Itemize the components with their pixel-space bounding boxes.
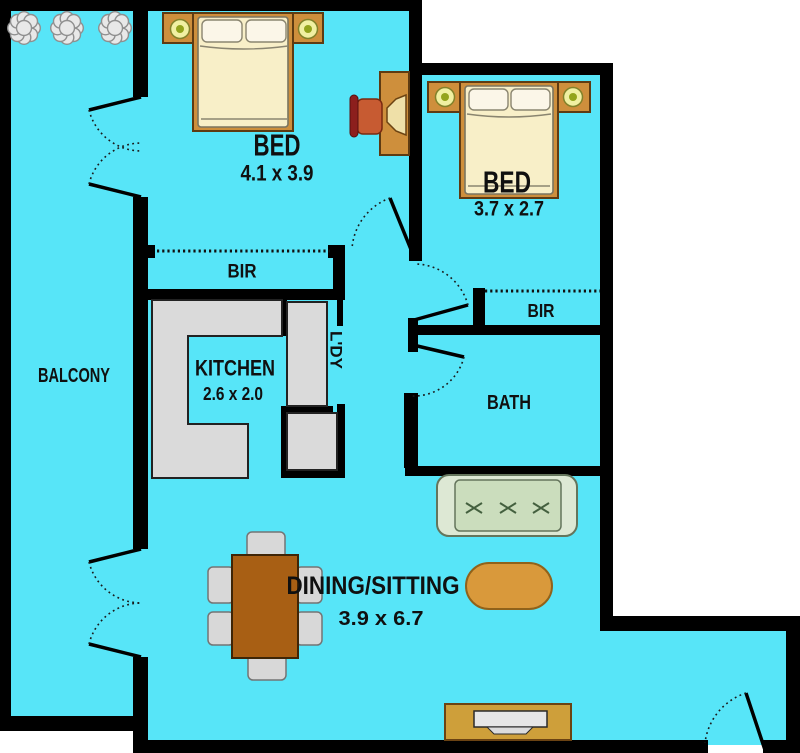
wall-bed2-bath bbox=[411, 325, 613, 335]
wall-balcony-bottom bbox=[0, 716, 148, 731]
pillow-icon bbox=[469, 89, 508, 110]
floorplan-canvas: BALCONY BED 4.1 x 3.9 BED 3.7 x 2.7 BIR … bbox=[0, 0, 800, 753]
dining-table-icon bbox=[232, 555, 298, 658]
room-dims-bed2: 3.7 x 2.7 bbox=[474, 198, 544, 221]
room-label-bir1: BIR bbox=[228, 262, 257, 283]
wall-store-bottom bbox=[281, 471, 345, 478]
pillow-icon bbox=[511, 89, 550, 110]
pillow-icon bbox=[246, 20, 286, 42]
wall-bir2-left bbox=[473, 288, 485, 327]
wall-step bbox=[600, 616, 800, 631]
wall-right-upper bbox=[600, 63, 613, 616]
wall-store-right bbox=[337, 404, 345, 478]
wall-left bbox=[0, 0, 11, 731]
room-label-bed2: BED bbox=[483, 165, 531, 200]
wall-bedroom-divider bbox=[409, 0, 422, 261]
lamp-dot bbox=[569, 93, 577, 101]
storage-cupboard-icon bbox=[287, 413, 337, 470]
wall-right-lower bbox=[786, 616, 800, 753]
lamp-dot bbox=[441, 93, 449, 101]
wall-bed2-top bbox=[409, 63, 613, 75]
wall-laundry-bottom bbox=[281, 406, 333, 413]
lamp-dot bbox=[176, 25, 184, 33]
balcony-plants bbox=[8, 12, 132, 45]
wall-top bbox=[0, 0, 422, 11]
wall-kitchen-top bbox=[140, 289, 345, 300]
plant-icon bbox=[51, 12, 84, 45]
ottoman-icon bbox=[466, 563, 552, 609]
tv-group bbox=[445, 704, 571, 740]
room-dims-kitchen: 2.6 x 2.0 bbox=[203, 384, 263, 404]
wall-bath-left bbox=[404, 393, 418, 468]
lamp-dot bbox=[304, 25, 312, 33]
plant-icon bbox=[8, 12, 41, 45]
tv-icon bbox=[474, 711, 547, 727]
desk-chair-icon bbox=[357, 99, 382, 134]
desk-chair-back bbox=[350, 95, 358, 137]
room-label-bed1: BED bbox=[254, 128, 301, 163]
room-label-kitchen: KITCHEN bbox=[195, 356, 275, 381]
floorplan-page: BALCONY BED 4.1 x 3.9 BED 3.7 x 2.7 BIR … bbox=[0, 0, 800, 753]
room-dims-bed1: 4.1 x 3.9 bbox=[241, 161, 314, 186]
wall-bir1-stub-left bbox=[133, 245, 155, 258]
wall-laundry-right bbox=[337, 300, 343, 326]
sofa-group bbox=[437, 475, 577, 536]
room-label-dining: DINING/SITTING bbox=[287, 572, 460, 600]
room-label-bir2: BIR bbox=[528, 301, 555, 321]
pillow-icon bbox=[202, 20, 242, 42]
plant-icon bbox=[99, 12, 132, 45]
dining-chair-icon bbox=[208, 612, 234, 645]
washing-machine-icon bbox=[287, 302, 327, 406]
dining-chair-icon bbox=[296, 612, 322, 645]
room-label-laundry: L'DY bbox=[327, 331, 346, 370]
dining-chair-icon bbox=[208, 567, 234, 603]
wall-balcony-c bbox=[133, 657, 148, 753]
room-label-bath: BATH bbox=[487, 392, 531, 414]
entry-wing-floor bbox=[600, 622, 793, 745]
wall-bottom-main bbox=[133, 740, 708, 753]
wall-balcony-a bbox=[133, 0, 148, 97]
room-label-balcony: BALCONY bbox=[38, 365, 110, 387]
tv-base bbox=[487, 727, 533, 734]
room-dims-dining: 3.9 x 6.7 bbox=[339, 608, 424, 630]
